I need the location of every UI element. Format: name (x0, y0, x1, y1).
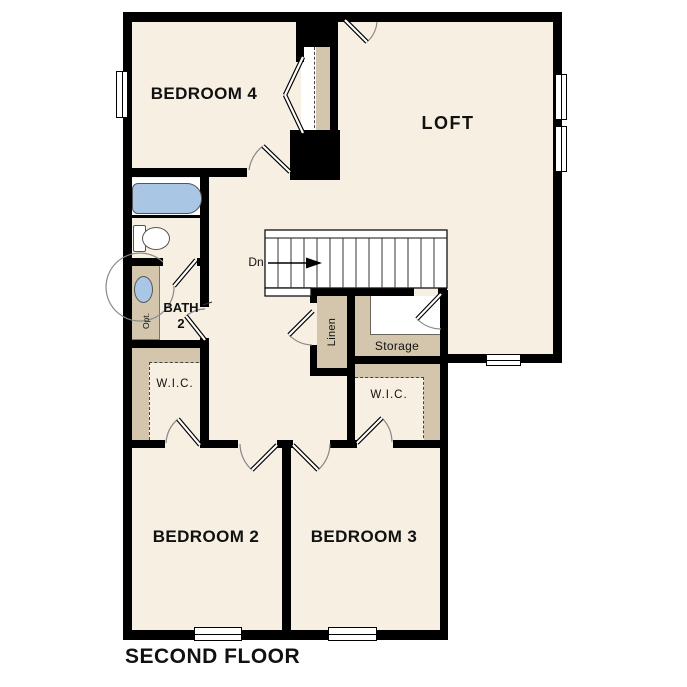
plan-title: SECOND FLOOR (125, 645, 425, 669)
label-linen: Linen (320, 305, 344, 359)
label-loft: LOFT (398, 113, 498, 134)
staircase (265, 230, 447, 296)
label-stairs-dn: Dn (243, 255, 269, 269)
door-arc-bedroom4 (249, 146, 263, 170)
label-wic-right: W.I.C. (359, 389, 419, 401)
door-arc-loft-entry (367, 22, 377, 42)
door-arc-bedroom2 (240, 444, 252, 470)
door-arc-storage (417, 319, 441, 329)
label-wic-left: W.I.C. (145, 378, 205, 390)
label-vanity-opt: Opt. (133, 307, 159, 335)
label-bedroom3: BEDROOM 3 (284, 527, 444, 547)
door-arc-wic-left (166, 419, 178, 443)
door-arc-wic-right (382, 418, 392, 442)
label-bedroom2: BEDROOM 2 (126, 527, 286, 547)
label-storage: Storage (362, 339, 432, 353)
door-arc-linen (289, 335, 312, 345)
floor-plan: BEDROOM 4 LOFT BATH 2 Linen Storage W.I.… (0, 0, 687, 687)
label-bath2: BATH 2 (151, 300, 211, 332)
door-arc-bedroom3 (318, 444, 330, 470)
label-bedroom4: BEDROOM 4 (124, 84, 284, 104)
